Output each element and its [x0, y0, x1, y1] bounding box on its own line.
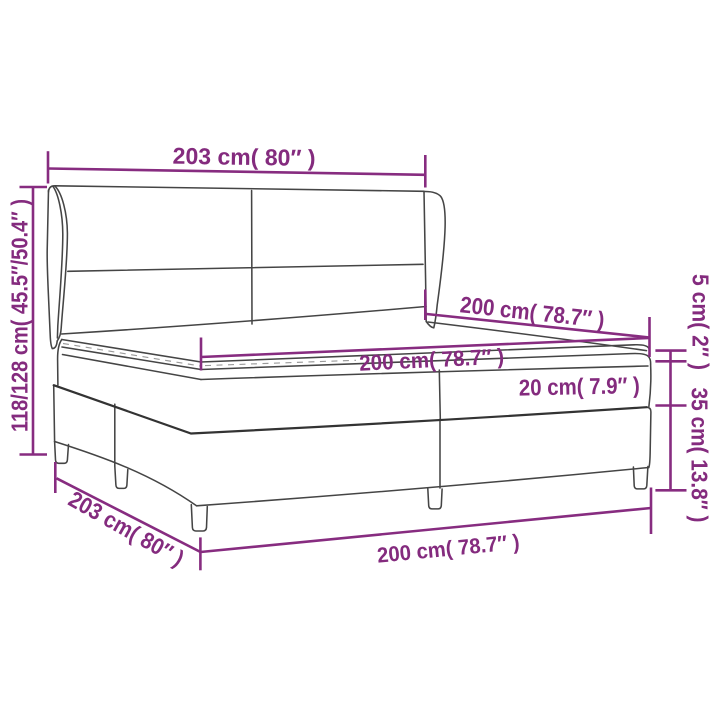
svg-text:20 cm( 7.9″ ): 20 cm( 7.9″ ) — [519, 372, 641, 401]
svg-text:203 cm( 80″ ): 203 cm( 80″ ) — [172, 143, 315, 171]
svg-text:5 cm( 2″ ): 5 cm( 2″ ) — [688, 274, 714, 370]
svg-text:35 cm( 13.8″ ): 35 cm( 13.8″ ) — [687, 388, 713, 523]
svg-text:118/128 cm( 45.5″/50.4″ ): 118/128 cm( 45.5″/50.4″ ) — [7, 199, 33, 432]
